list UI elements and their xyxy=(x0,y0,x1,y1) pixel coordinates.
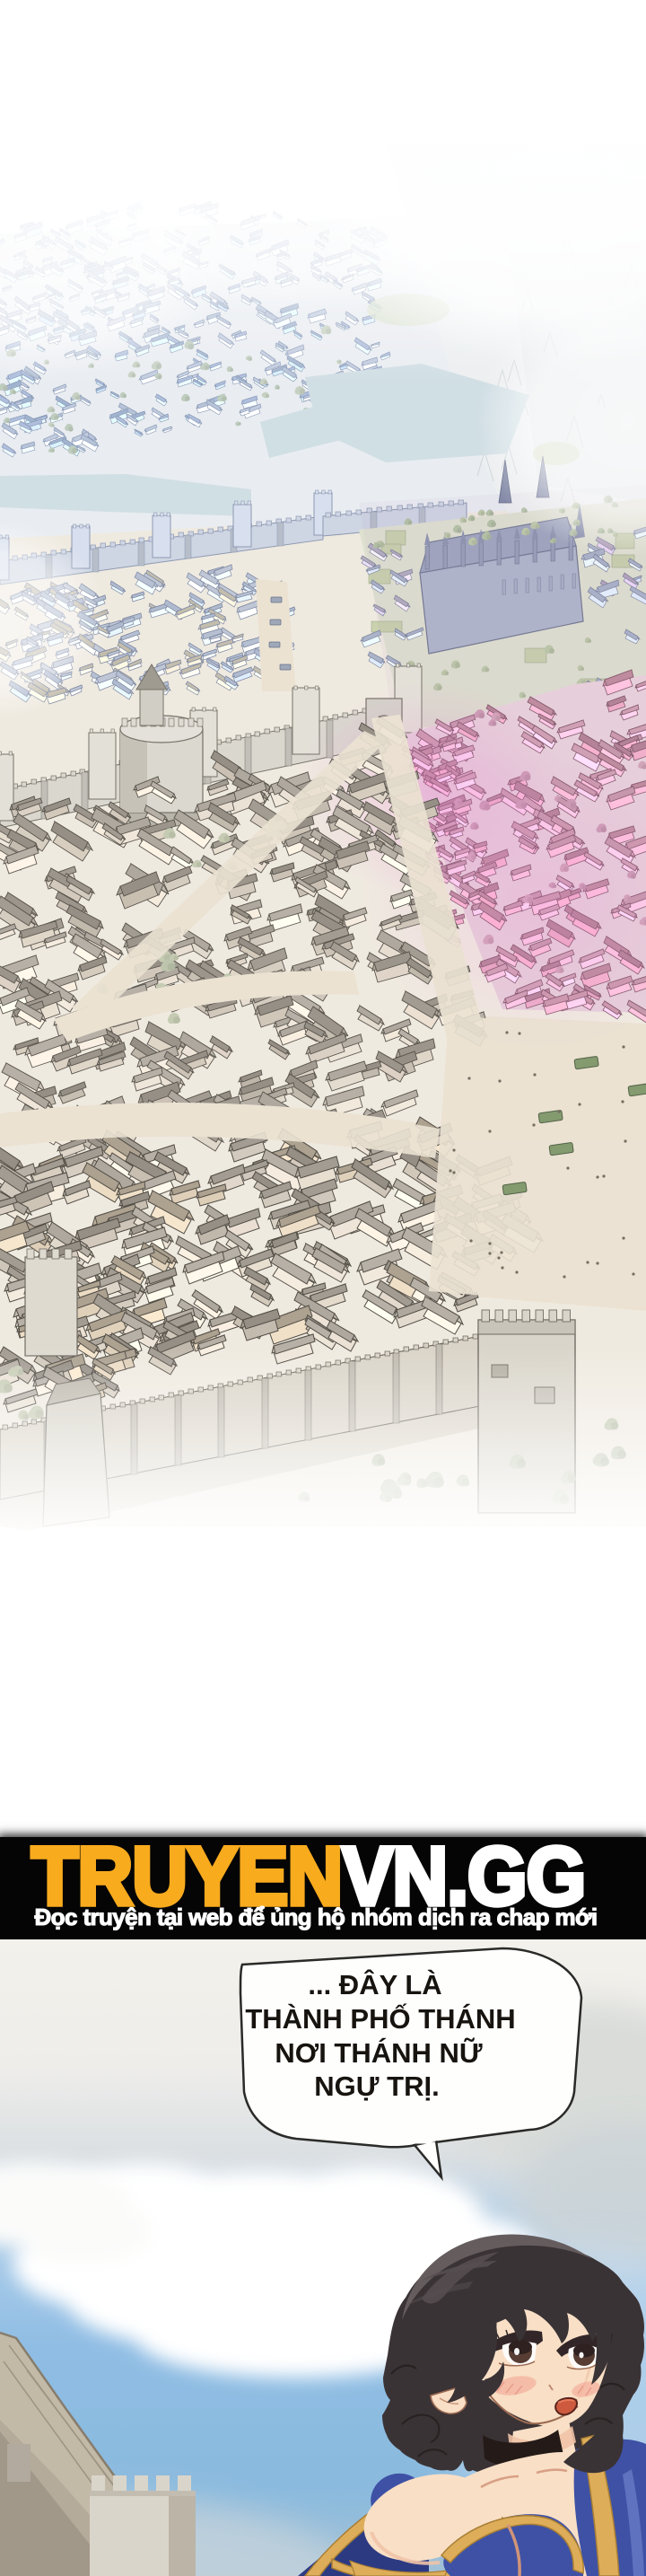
svg-text:... ĐÂY LÀ: ... ĐÂY LÀ xyxy=(308,1968,441,2000)
svg-text:NGỰ TRỊ.: NGỰ TRỊ. xyxy=(314,2070,439,2102)
svg-text:THÀNH PHỐ THÁNH: THÀNH PHỐ THÁNH xyxy=(245,2002,515,2035)
svg-text:NƠI THÁNH NỮ: NƠI THÁNH NỮ xyxy=(275,2036,483,2069)
